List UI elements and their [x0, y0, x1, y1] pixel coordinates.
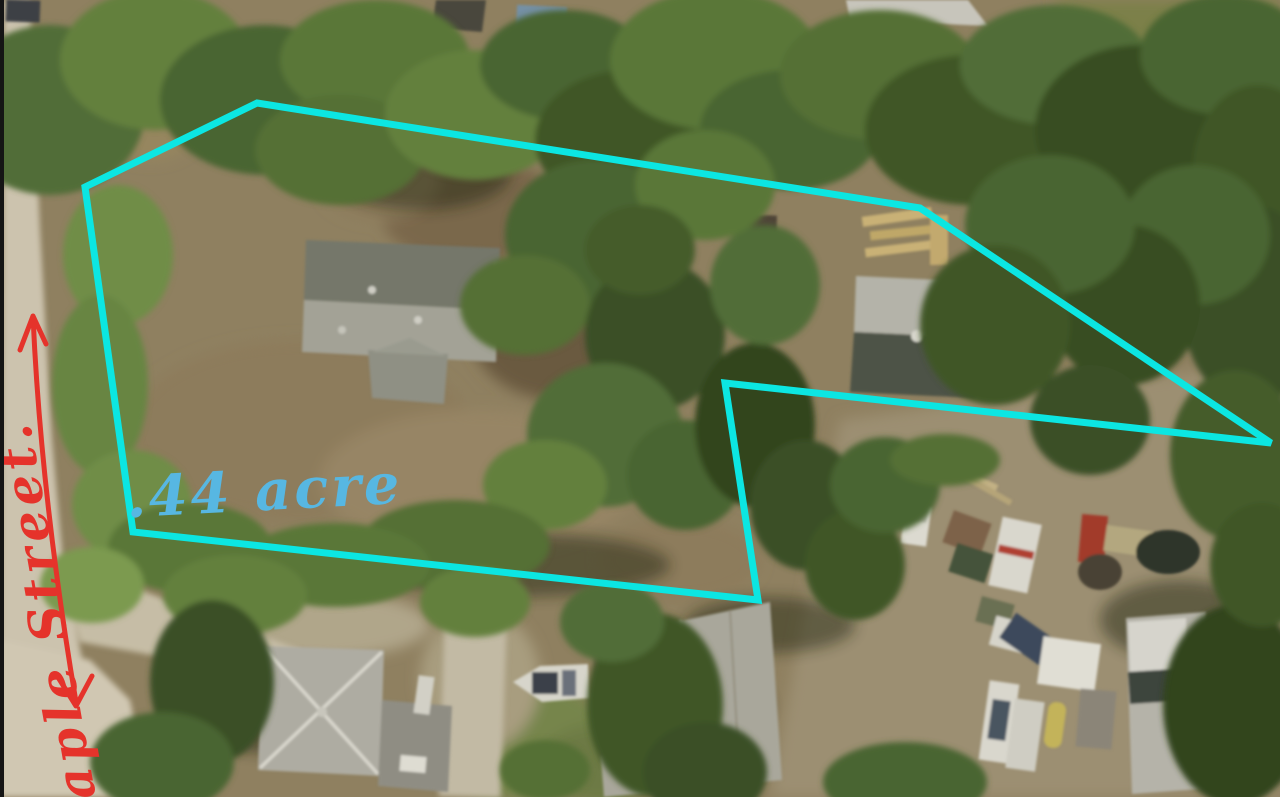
photo-edge-border	[0, 0, 4, 797]
aerial-photo-canvas	[0, 0, 1280, 797]
annotated-aerial-photo: .44 acre Maple Street.	[0, 0, 1280, 797]
